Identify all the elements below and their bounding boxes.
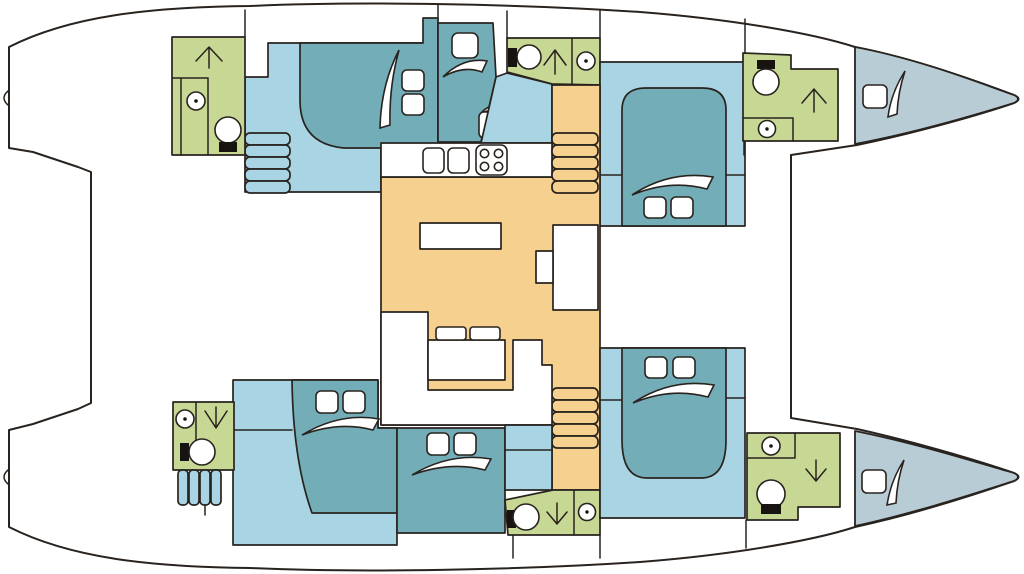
stair-tread (552, 169, 598, 181)
stair-tread (552, 145, 598, 157)
burner (494, 162, 502, 170)
seat-cushion (436, 327, 466, 340)
nav-chart-table (553, 225, 598, 310)
pillow (644, 197, 666, 218)
sink-drain (765, 127, 768, 130)
stove-icon (476, 145, 507, 175)
toilet-icon (215, 117, 241, 143)
sink-drain (194, 99, 198, 103)
port-companionway-steps (245, 133, 290, 193)
sink-drain (769, 444, 773, 448)
stbd-passage (505, 425, 552, 490)
pillow (402, 94, 424, 115)
burner (494, 149, 502, 157)
step (245, 133, 290, 145)
stair-tread (552, 400, 598, 412)
stair-tread (552, 133, 598, 145)
pillow (316, 391, 338, 413)
stair-tread (552, 436, 598, 448)
stair-tread (552, 181, 598, 193)
step (178, 470, 188, 505)
stbd-passage-floor (505, 425, 552, 490)
sink-drain (585, 510, 588, 513)
galley-sink (448, 148, 469, 173)
pillow (645, 357, 667, 378)
salon-table (428, 340, 505, 380)
stair-tread (552, 157, 598, 169)
hatch-icon (452, 33, 478, 58)
toilet-icon (753, 69, 779, 95)
step (211, 470, 221, 505)
sink-drain (183, 417, 187, 421)
stbd-aft-head (173, 402, 234, 470)
toilet-seat (757, 60, 775, 69)
toilet-icon (757, 480, 785, 508)
pillow (427, 433, 449, 455)
stairs-to-port-hull (552, 133, 598, 193)
stbd-mid-bed (397, 428, 505, 533)
stbd-mid-berth (397, 428, 505, 533)
port-fwd-cabin (600, 62, 745, 226)
toilet-icon (517, 45, 541, 69)
stbd-fwd-head-room (747, 433, 840, 520)
pillow (343, 391, 365, 413)
stair-tread (552, 424, 598, 436)
step (245, 169, 290, 181)
toilet-seat (219, 142, 237, 152)
galley-sink (423, 148, 444, 173)
stbd-center-head (505, 490, 600, 535)
sink-drain (584, 59, 588, 63)
step (245, 145, 290, 157)
burner (480, 149, 488, 157)
nav-seat (536, 251, 553, 283)
stbd-fwd-head (747, 433, 840, 520)
toilet-seat (180, 443, 189, 461)
stern-cleat-icon (4, 470, 8, 484)
stair-tread (552, 388, 598, 400)
hatch-icon (862, 470, 886, 493)
toilet-seat (508, 48, 517, 67)
step (245, 181, 290, 193)
stair-tread (552, 412, 598, 424)
galley-island (420, 223, 501, 249)
stbd-companionway-steps (178, 470, 221, 505)
stbd-fwd-cabin (600, 348, 745, 518)
step (200, 470, 210, 505)
stairs-to-starboard-hull (552, 388, 598, 448)
step (245, 157, 290, 169)
pillow (673, 357, 695, 378)
step (189, 470, 199, 505)
toilet-seat (761, 504, 781, 514)
stern-cleat-icon (4, 91, 8, 105)
hatch-icon (863, 85, 887, 108)
deck-plan (0, 0, 1024, 574)
stbd-bow-locker (855, 431, 1018, 526)
pillow (402, 70, 424, 91)
port-bow-locker (855, 47, 1018, 144)
pillow (671, 197, 693, 218)
port-aft-head (172, 37, 245, 155)
pillow (454, 433, 476, 455)
burner (480, 162, 488, 170)
stove-top (476, 145, 507, 175)
seat-cushion (470, 327, 500, 340)
deck-plan-svg (0, 0, 1024, 574)
toilet-icon (513, 504, 539, 530)
toilet-icon (189, 439, 215, 465)
